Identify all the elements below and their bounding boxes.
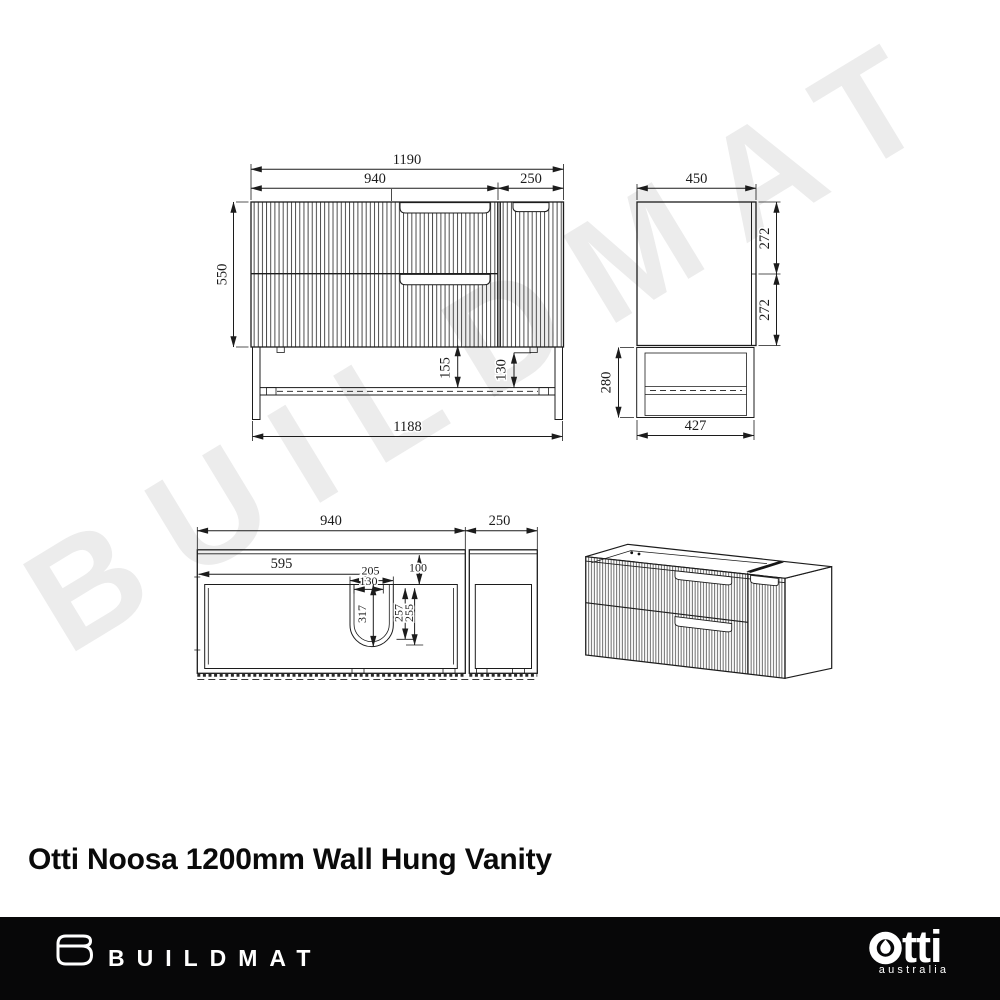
dim-front-shelf-rail-height: 130 (494, 359, 510, 381)
front-elevation-view: 1190 940 250 550 155 130 (215, 152, 564, 441)
side-leg-frame (637, 348, 754, 418)
inner-rim-second-line (208, 588, 453, 665)
droplet-icon (880, 940, 890, 954)
tap-hole-dot (638, 553, 641, 556)
dim-front-cabinet-height: 550 (215, 264, 231, 286)
dim-side-top-drawer-height: 272 (757, 228, 773, 250)
side-panel (637, 202, 756, 346)
dim-plan-front-edge-inset: 100 (409, 561, 427, 575)
extension-lines (236, 202, 249, 347)
extension-lines (620, 348, 634, 418)
dim-front-frame-width: 1188 (393, 419, 421, 435)
buildmat-logo-icon (54, 932, 96, 968)
dim-plan-door-top-width: 250 (489, 513, 511, 529)
extension-lines (759, 202, 781, 346)
tap-hole-dot (630, 551, 633, 554)
dim-front-overall-width: 1190 (393, 152, 421, 168)
dim-side-bottom-drawer-height: 272 (757, 299, 773, 321)
door-top-outline (469, 550, 537, 674)
dim-plan-basin-cutout-length: 317 (355, 605, 369, 623)
product-title: Otti Noosa 1200mm Wall Hung Vanity (28, 843, 552, 877)
otti-australia-label: australia (869, 964, 959, 976)
otti-wordmark-suffix: tti (902, 921, 941, 970)
dim-plan-basin-inner-width: 130 (360, 574, 378, 588)
footer-bar: BUILDMAT tti australia (0, 917, 1000, 1000)
door-inner-rim (475, 585, 531, 669)
iso-side-panel (785, 567, 832, 679)
vanity-technical-drawing: 1190 940 250 550 155 130 (0, 0, 1000, 815)
cabinet-inner-rim (205, 585, 458, 669)
dim-side-frame-height: 280 (599, 372, 615, 394)
dim-front-door-section-width: 250 (520, 171, 542, 187)
front-edge-hardware (352, 669, 525, 674)
dim-front-frame-inner-height: 155 (438, 357, 454, 379)
dim-plan-basin-depth-inner: 255 (402, 604, 416, 622)
bottom-drawer-handle-cutout (400, 274, 490, 284)
dim-side-frame-depth: 427 (685, 418, 707, 434)
top-drawer-handle-cutout (400, 203, 490, 213)
dim-plan-basin-centre-offset: 595 (271, 556, 293, 572)
dim-plan-benchtop-width: 940 (320, 513, 342, 529)
otti-logo: tti (868, 918, 963, 970)
isometric-view (586, 544, 832, 678)
dim-side-depth: 450 (686, 171, 708, 187)
side-elevation-view: 450 272 272 280 427 (599, 171, 781, 440)
front-leg-frame (253, 347, 563, 420)
buildmat-wordmark: BUILDMAT (108, 945, 322, 972)
plan-view: 940 250 595 205 130 100 3 (194, 513, 537, 679)
dim-front-drawer-section-width: 940 (364, 171, 386, 187)
door-handle-cutout (513, 203, 549, 212)
